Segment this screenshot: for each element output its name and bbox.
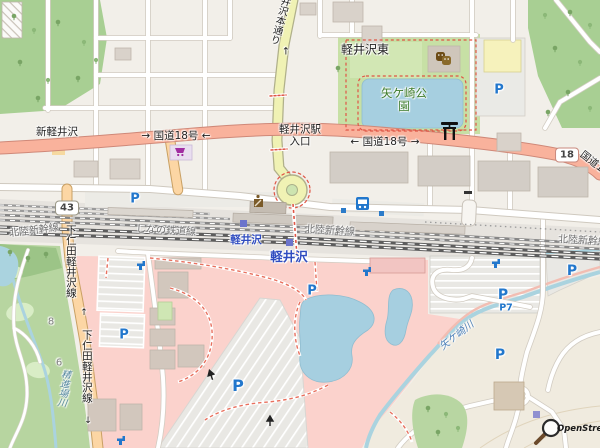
- attribution-watermark: OpenStreetMap: [557, 424, 600, 434]
- map-tiles: [0, 0, 600, 448]
- bus-station-icon: [356, 197, 369, 210]
- map-canvas[interactable]: 軽井沢東 新軽井沢 矢ケ崎公園 → 国道18号 ← ← 国道18号 → 軽井沢駅…: [0, 0, 600, 448]
- station-entrance-marker: [533, 411, 540, 418]
- station-entrance-marker: [240, 220, 247, 227]
- route-shield-18: 18: [555, 148, 579, 163]
- station-entrance-marker: [286, 239, 293, 246]
- route-shield-43: 43: [55, 201, 79, 216]
- bus-stop-marker: [379, 211, 384, 216]
- bus-stop-marker: [341, 208, 346, 213]
